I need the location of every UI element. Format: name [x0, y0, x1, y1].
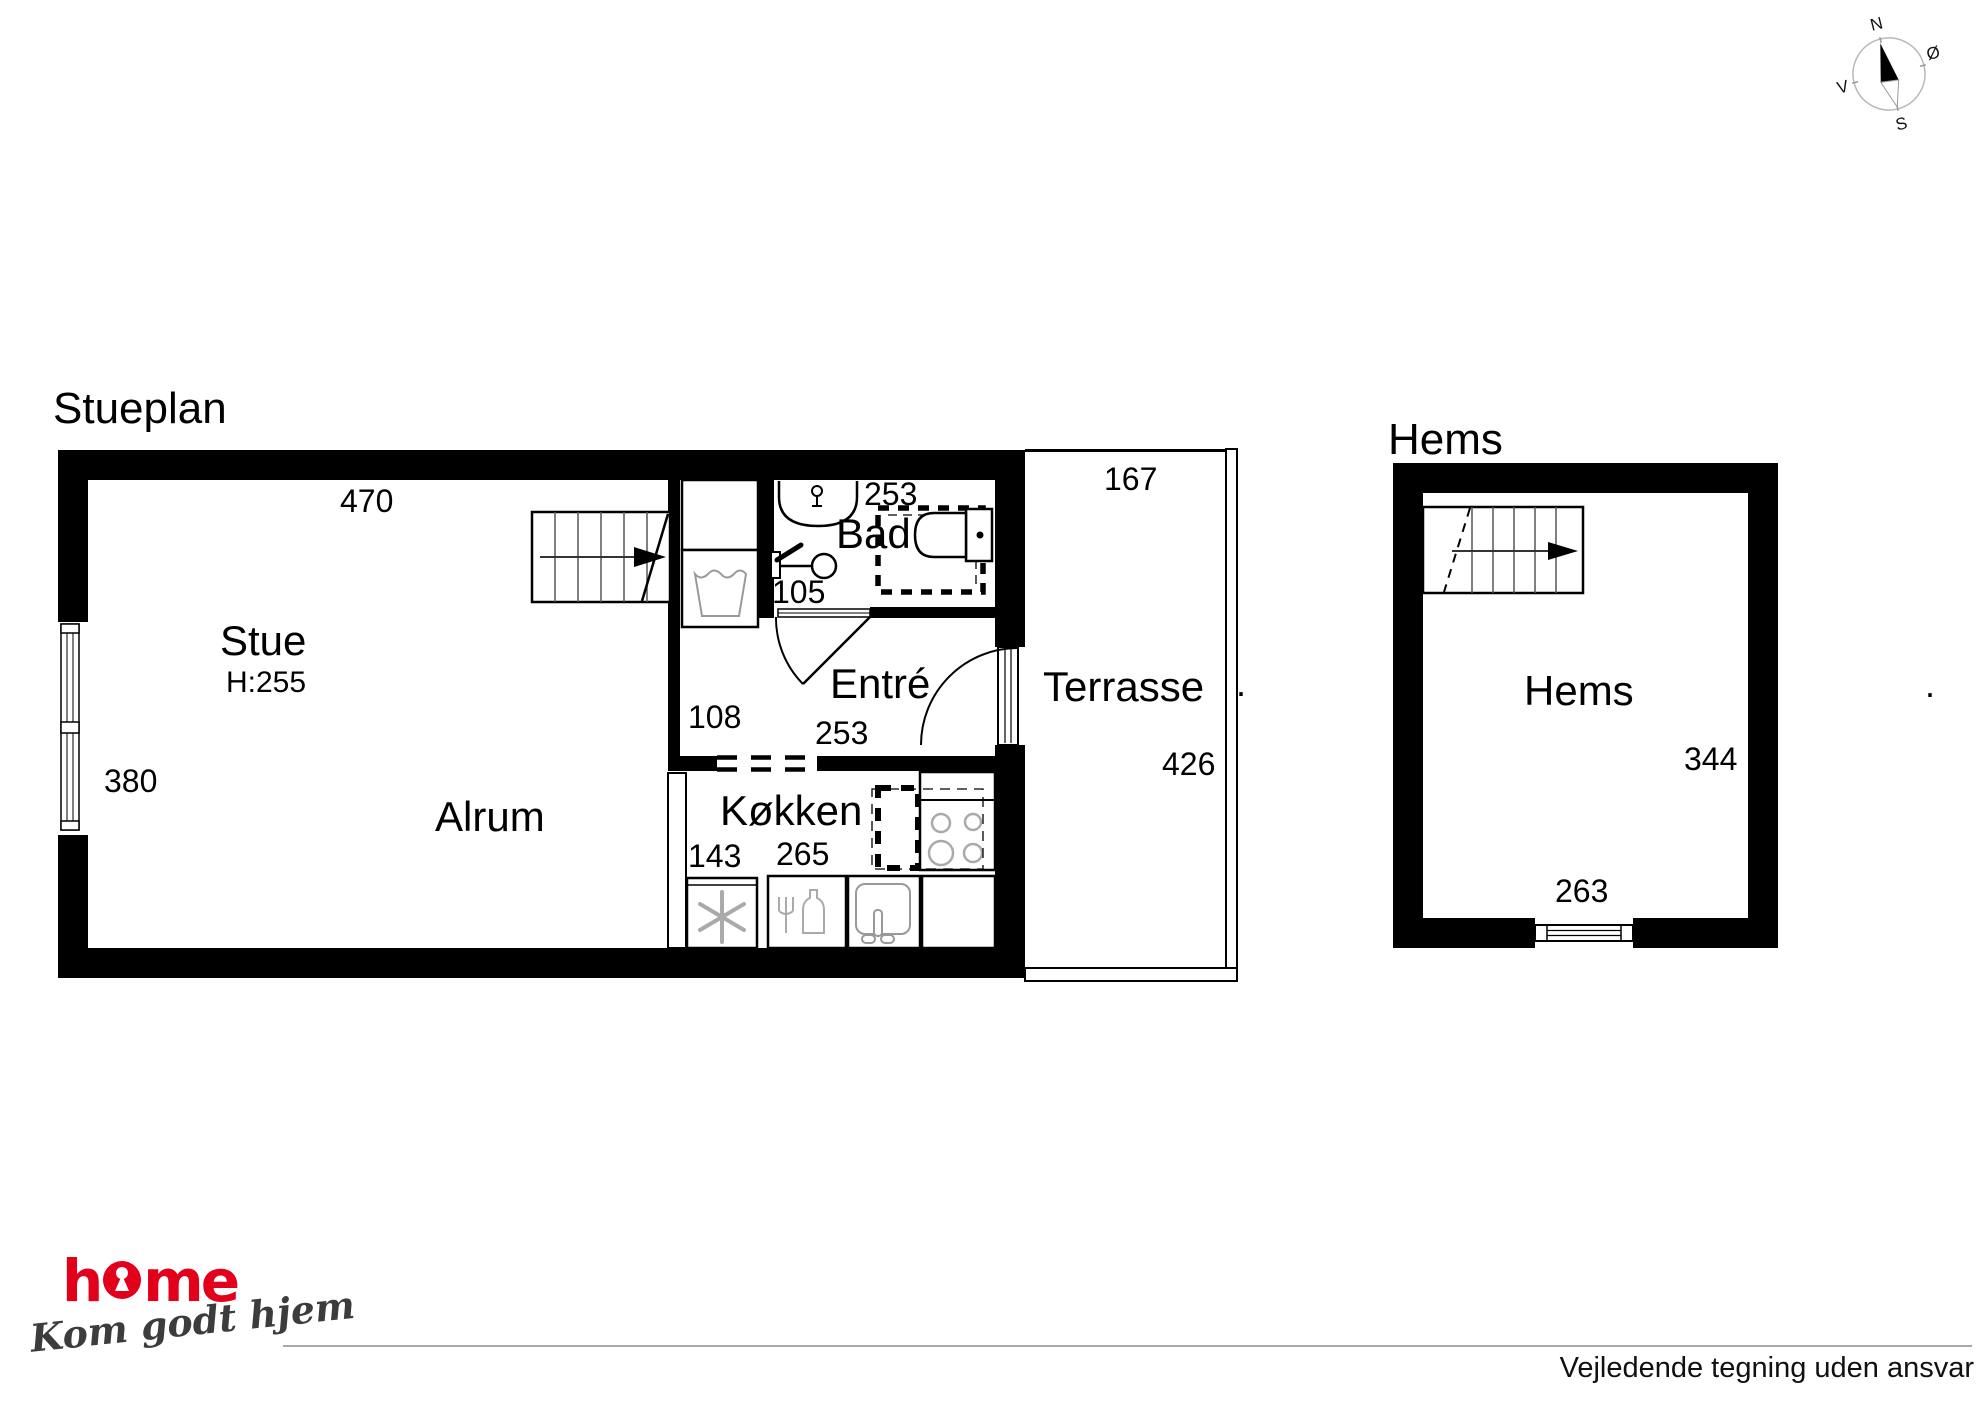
wall-opening-dashed — [717, 758, 817, 770]
keyhole-icon — [103, 1261, 141, 1299]
staircase-symbol — [532, 512, 670, 602]
wall — [817, 756, 995, 771]
loft-title: Hems — [1388, 417, 1503, 463]
floorplan-page: N S V Ø Stueplan 470 Stue H:255 380 Alru… — [0, 0, 1984, 1403]
disclaimer-text: Vejledende tegning uden ansvar — [1560, 1352, 1974, 1385]
stray-period-mark: . — [1925, 667, 1935, 703]
dim-bad-width: 253 — [864, 478, 917, 512]
stray-period-mark: . — [1236, 666, 1246, 702]
wall — [1748, 463, 1778, 948]
stove-symbol — [920, 772, 995, 870]
room-label-bad: Bad — [836, 512, 911, 556]
ground-floor-title: Stueplan — [53, 386, 227, 432]
kitchen-sink-symbol — [848, 876, 920, 948]
compass-needle — [1872, 41, 1899, 84]
dim-stue-top-width: 470 — [340, 485, 393, 519]
footer-divider-line — [283, 1345, 1972, 1347]
window-symbol — [61, 624, 79, 830]
dim-hems-bottom: 263 — [1555, 875, 1608, 909]
fridge-symbol — [768, 876, 846, 948]
compass-east-label: Ø — [1925, 42, 1942, 64]
wall — [668, 756, 717, 771]
dim-terrasse-side: 426 — [1162, 748, 1215, 782]
compass-west-label: V — [1835, 76, 1851, 97]
entrance-door — [921, 647, 1018, 745]
wall — [870, 607, 995, 618]
room-label-hems: Hems — [1524, 669, 1634, 713]
compass-rose: N S V Ø — [1822, 2, 1957, 147]
dishwasher-symbol — [878, 788, 918, 868]
logo-text-part1: h — [62, 1252, 100, 1310]
room-label-stue: Stue — [220, 619, 306, 663]
stue-ceiling-height: H:255 — [226, 667, 306, 699]
wall — [58, 450, 88, 622]
room-label-alrum: Alrum — [435, 795, 545, 839]
wall — [1393, 918, 1535, 948]
wall — [1633, 918, 1778, 948]
dim-hems-side: 344 — [1684, 743, 1737, 777]
washing-machine-symbol — [682, 480, 758, 627]
wall — [58, 948, 1025, 978]
floorplan-drawing: N S V Ø — [0, 0, 1984, 1403]
dim-kokken-left: 143 — [688, 840, 741, 874]
freezer-symbol — [687, 878, 757, 948]
compass-north-label: N — [1868, 13, 1885, 34]
wall — [1393, 463, 1778, 493]
compass-south-label: S — [1894, 113, 1910, 134]
dim-bad-side: 105 — [772, 576, 825, 610]
wall — [995, 450, 1025, 647]
loft-staircase-symbol — [1423, 507, 1583, 593]
toilet-symbol — [915, 509, 992, 561]
dim-kokken-width: 265 — [776, 838, 829, 872]
dim-terrasse-top: 167 — [1104, 463, 1157, 497]
room-label-kokken: Køkken — [720, 789, 862, 833]
room-label-entre: Entré — [830, 662, 930, 706]
dim-stue-left-height: 380 — [104, 765, 157, 799]
door-swing-arc — [776, 617, 803, 684]
dim-entre-height: 108 — [688, 701, 741, 735]
terrasse-outline — [1025, 449, 1237, 981]
room-label-terrasse: Terrasse — [1043, 665, 1204, 709]
loft-window-symbol — [1535, 925, 1633, 941]
tall-cabinet-symbol — [668, 773, 686, 948]
keyhole-stem — [115, 1275, 129, 1291]
dim-entre-width: 253 — [815, 717, 868, 751]
wall — [1393, 463, 1423, 948]
wall — [995, 745, 1025, 978]
counter-cabinet-symbol — [922, 876, 995, 948]
